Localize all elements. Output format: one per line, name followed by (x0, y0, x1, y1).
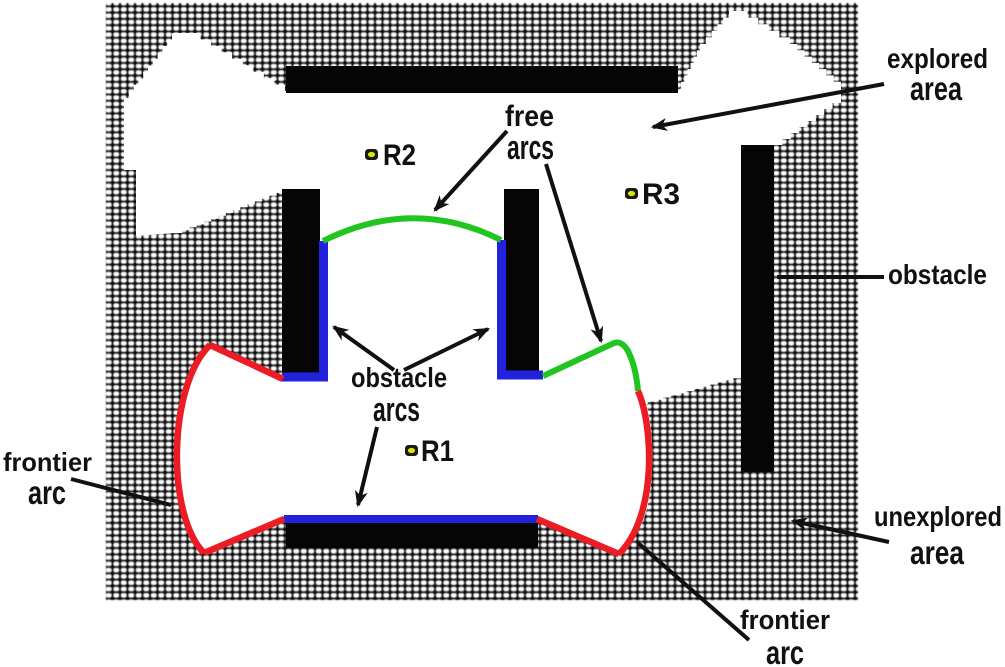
svg-text:R2: R2 (383, 139, 416, 172)
svg-text:unexplored: unexplored (874, 501, 1002, 532)
svg-text:obstacle: obstacle (351, 362, 447, 393)
svg-text:area: area (910, 534, 965, 571)
svg-text:R3: R3 (642, 178, 680, 211)
svg-text:frontier: frontier (740, 605, 830, 635)
svg-text:area: area (910, 70, 962, 107)
svg-text:arcs: arcs (507, 129, 554, 167)
svg-text:arc: arc (766, 634, 804, 667)
svg-text:frontier: frontier (3, 447, 92, 477)
svg-text:arc: arc (28, 474, 66, 511)
svg-text:arcs: arcs (373, 391, 420, 429)
svg-text:obstacle: obstacle (888, 259, 987, 290)
svg-text:R1: R1 (421, 435, 454, 468)
